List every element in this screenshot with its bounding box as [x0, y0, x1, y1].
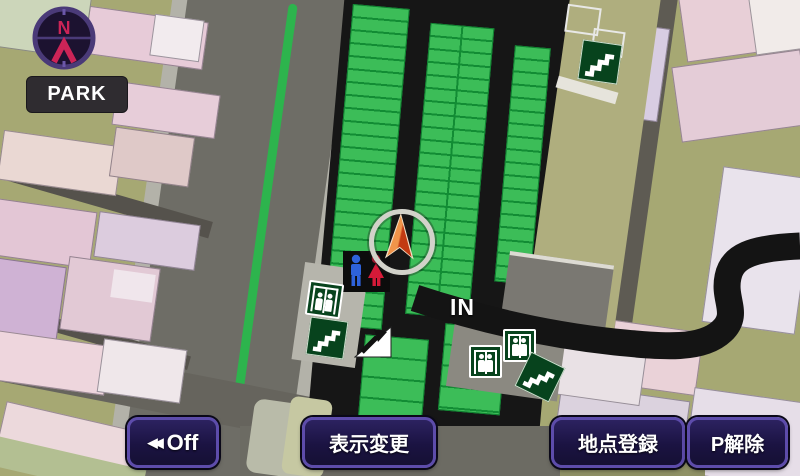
elevator-icon — [305, 280, 345, 320]
person-figure — [315, 298, 324, 311]
elevator-car — [474, 350, 497, 374]
building — [110, 269, 155, 303]
building — [109, 127, 195, 188]
person-figure — [486, 360, 493, 372]
building — [149, 14, 204, 63]
building — [671, 49, 800, 142]
double-left-arrow-icon: ◀◀ — [148, 435, 160, 451]
entrance-label: IN — [450, 294, 475, 321]
compass-north-letter: N — [58, 18, 71, 38]
building — [0, 130, 123, 196]
off-button-label: Off — [167, 430, 199, 456]
map-mode-badge: PARK — [26, 76, 128, 113]
display-change-button[interactable]: 表示変更 — [302, 417, 436, 468]
building — [97, 338, 188, 403]
person-figure — [520, 344, 527, 356]
parking-release-label: P解除 — [711, 428, 764, 457]
elevator-car — [508, 334, 531, 358]
point-register-button[interactable]: 地点登録 — [551, 417, 685, 468]
elevator-car — [310, 285, 338, 314]
elevator-icon — [469, 345, 502, 378]
point-register-label: 地点登録 — [578, 428, 658, 457]
map-canvas[interactable]: IN N PARK ◀◀Off 表示変更 地点登録 P解除 — [0, 0, 800, 476]
stairs-icon — [306, 317, 349, 360]
off-button[interactable]: ◀◀Off — [127, 417, 219, 468]
building — [0, 257, 67, 340]
stairs-icon — [577, 39, 622, 84]
slope-icon — [354, 326, 392, 358]
person-figure — [478, 360, 485, 372]
building — [702, 166, 800, 335]
person-figure — [324, 299, 333, 312]
compass-icon: N — [30, 4, 98, 72]
parking-release-button[interactable]: P解除 — [687, 417, 788, 468]
building — [748, 0, 800, 55]
map-mode-label: PARK — [47, 83, 106, 105]
person-figure — [512, 344, 519, 356]
display-change-label: 表示変更 — [329, 428, 409, 457]
